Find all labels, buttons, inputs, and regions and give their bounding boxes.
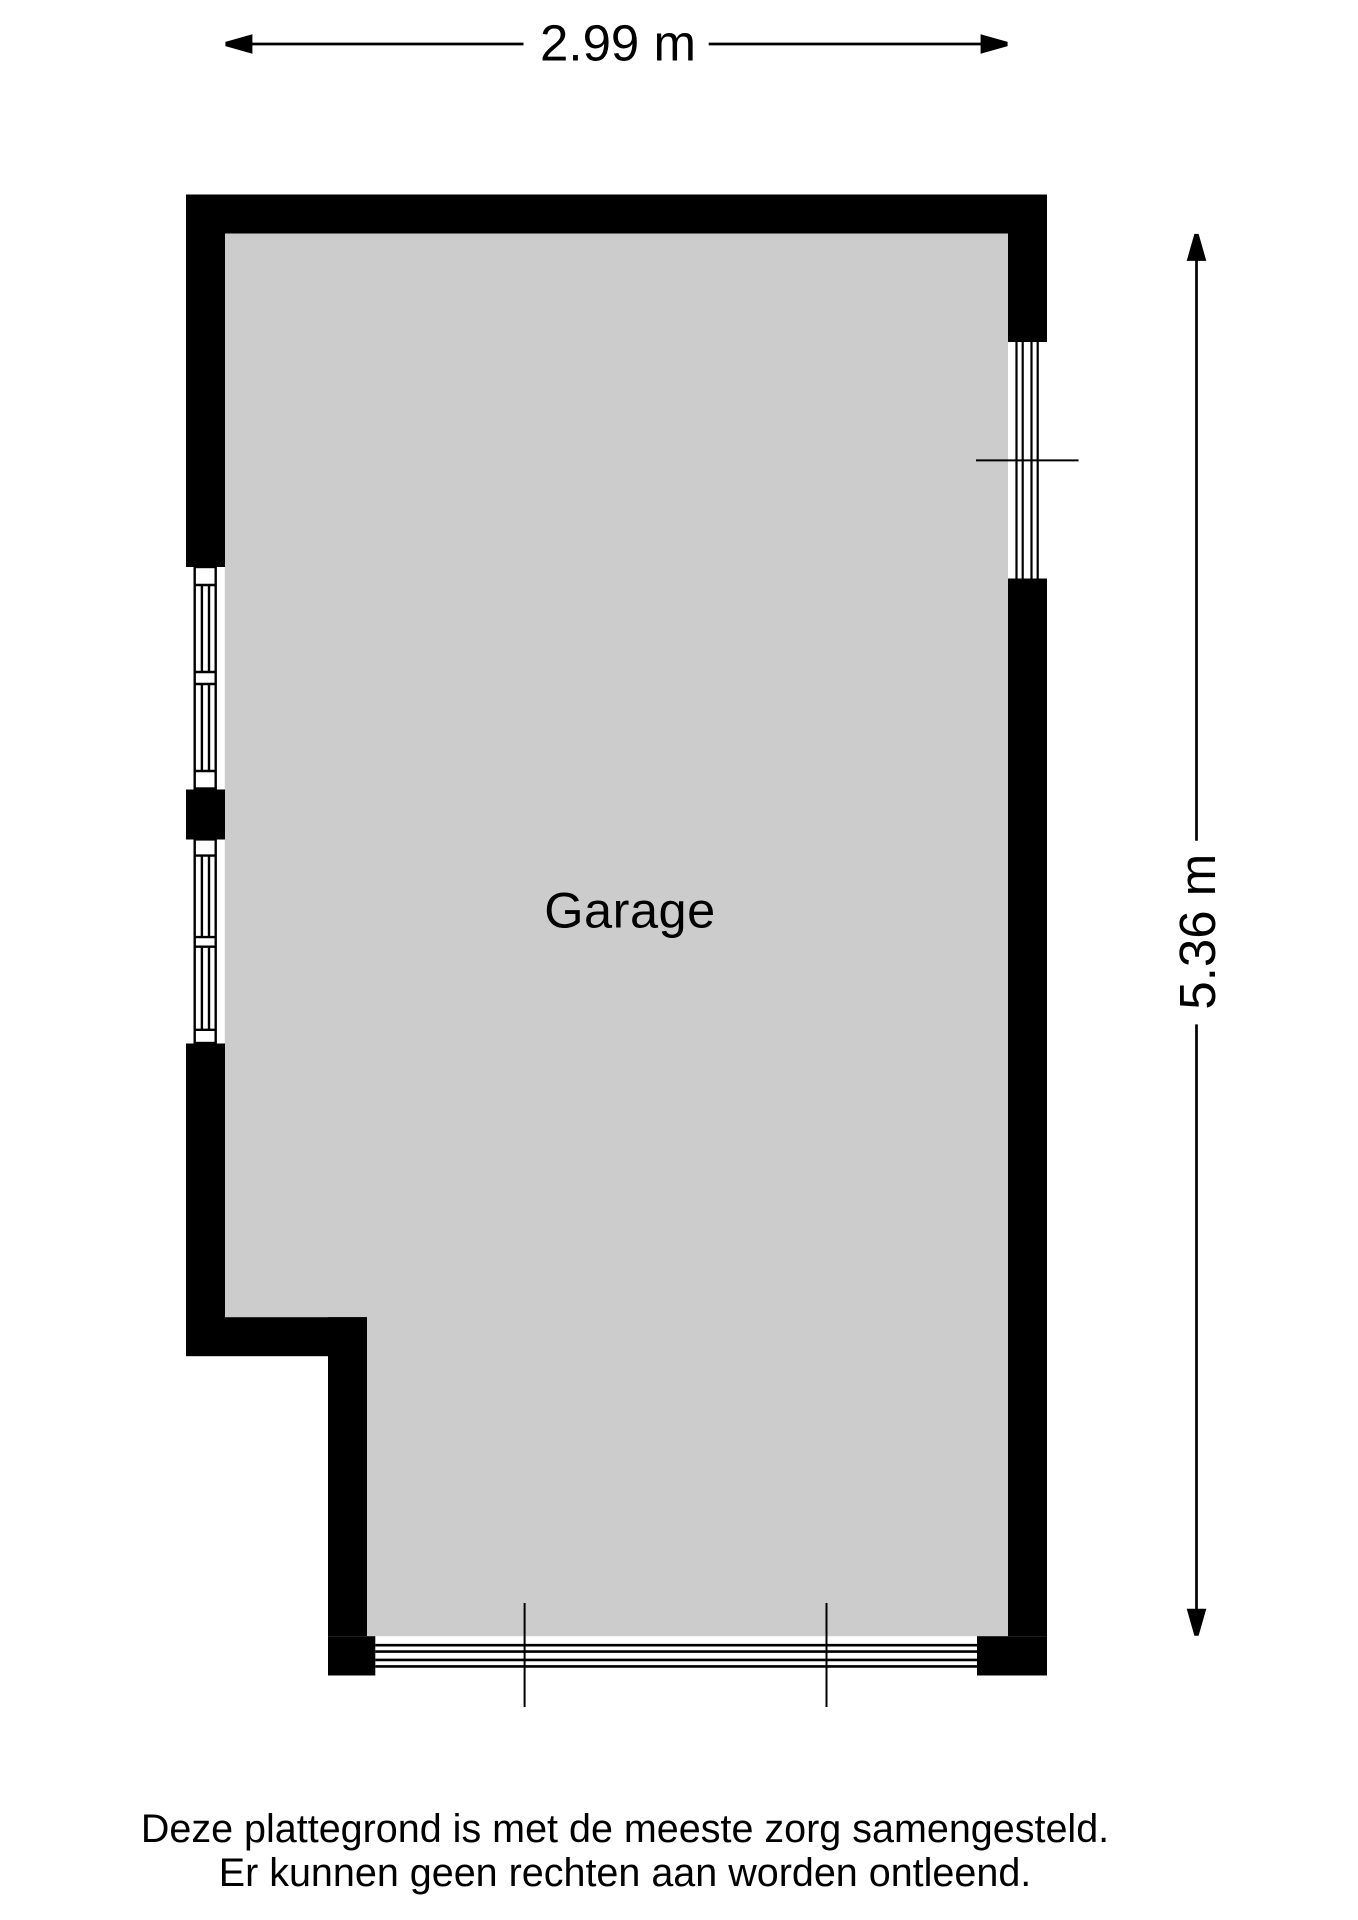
svg-text:Deze plattegrond is met de mee: Deze plattegrond is met de meeste zorg s… [141, 1807, 1109, 1851]
svg-text:Garage: Garage [544, 882, 715, 939]
svg-text:2.99 m: 2.99 m [540, 15, 696, 72]
svg-text:5.36 m: 5.36 m [1169, 854, 1226, 1010]
svg-text:Er kunnen geen rechten aan wor: Er kunnen geen rechten aan worden ontlee… [219, 1851, 1032, 1895]
